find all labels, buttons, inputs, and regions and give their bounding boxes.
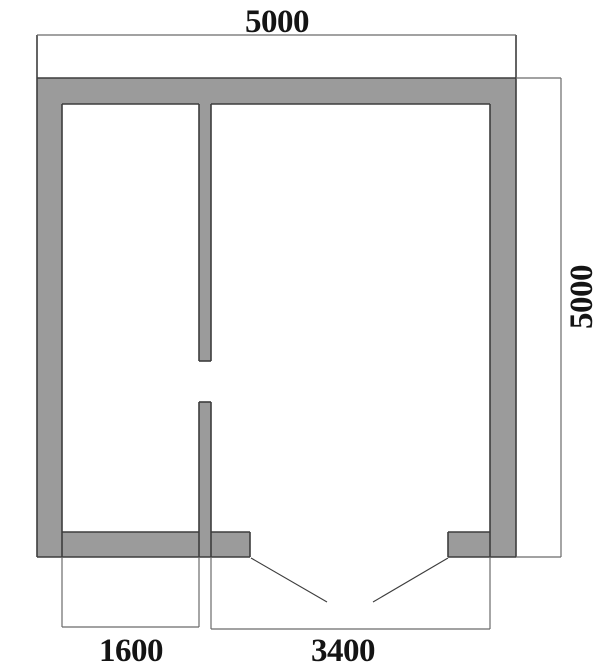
- wall-top: [37, 78, 516, 104]
- dimension-label-right: 5000: [564, 265, 600, 329]
- dimension-label-bottom-left: 1600: [99, 633, 163, 669]
- wall-left: [37, 78, 62, 557]
- door-swing-left: [251, 558, 327, 602]
- walls: [37, 78, 516, 557]
- dimension-label-bottom-right: 3400: [311, 633, 375, 669]
- wall-bottom-right-segment: [448, 532, 490, 557]
- wall-right: [490, 78, 516, 557]
- floor-plan-drawing: 5000 5000 1600 3400: [0, 0, 615, 670]
- door-swing-lines: [251, 558, 448, 602]
- partition-wall-lower: [199, 402, 211, 557]
- wall-outlines: [37, 35, 516, 557]
- partition-wall-upper: [199, 104, 211, 361]
- wall-bottom-left-segment: [62, 532, 250, 557]
- door-swing-right: [373, 558, 448, 602]
- dimension-label-top: 5000: [245, 4, 309, 40]
- floor-plan: 5000 5000 1600 3400: [0, 0, 615, 670]
